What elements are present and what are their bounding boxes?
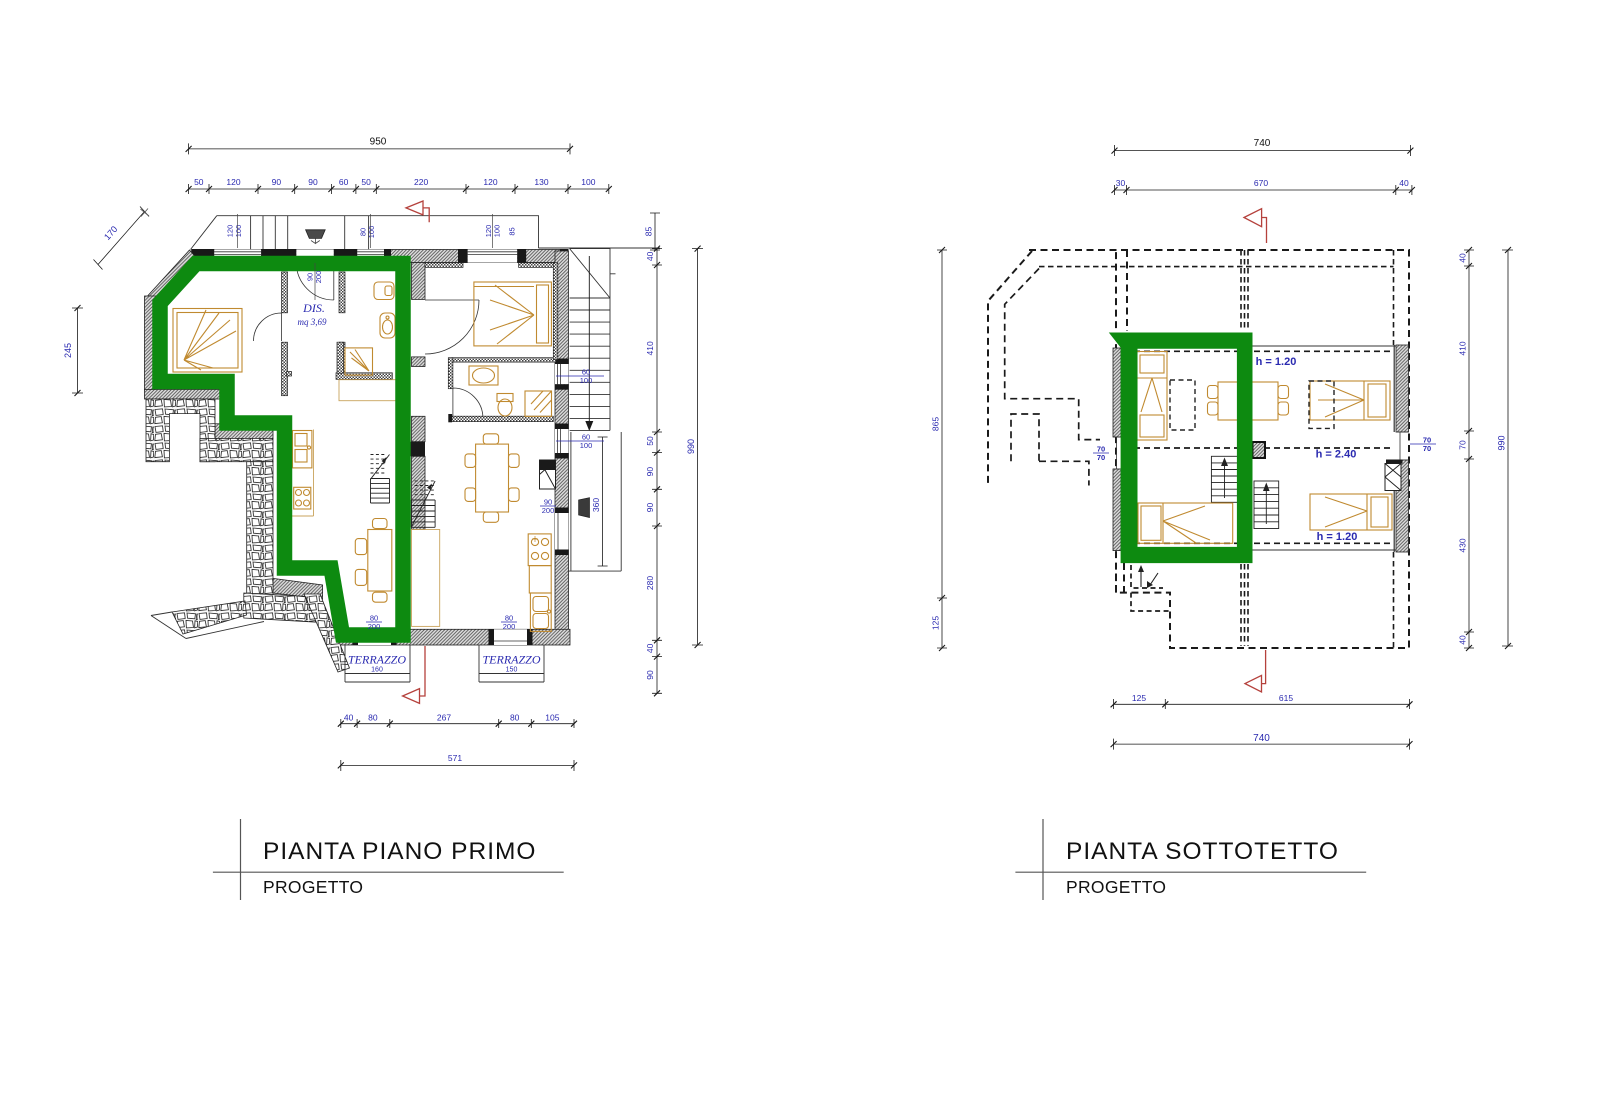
- svg-text:120: 120: [226, 177, 240, 187]
- svg-text:85: 85: [508, 227, 517, 235]
- svg-text:85: 85: [644, 227, 654, 237]
- svg-text:990: 990: [1497, 435, 1507, 450]
- svg-text:40: 40: [1399, 178, 1409, 188]
- svg-text:125: 125: [1132, 693, 1146, 703]
- svg-text:h = 1.20: h = 1.20: [1256, 356, 1297, 368]
- svg-text:220: 220: [414, 177, 428, 187]
- svg-text:70: 70: [1423, 444, 1431, 453]
- svg-text:950: 950: [370, 137, 387, 148]
- svg-text:40: 40: [1458, 253, 1468, 263]
- svg-text:410: 410: [645, 341, 655, 355]
- svg-text:130: 130: [534, 177, 548, 187]
- svg-text:670: 670: [1254, 178, 1268, 188]
- svg-text:TERRAZZO: TERRAZZO: [348, 653, 406, 667]
- svg-text:DIS.: DIS.: [302, 301, 325, 315]
- svg-text:160: 160: [371, 667, 383, 674]
- svg-text:105: 105: [545, 712, 559, 722]
- svg-text:50: 50: [645, 436, 655, 446]
- svg-text:TERRAZZO: TERRAZZO: [482, 653, 540, 667]
- svg-text:100: 100: [492, 225, 501, 238]
- svg-text:267: 267: [437, 712, 451, 722]
- svg-text:PROGETTO: PROGETTO: [263, 877, 363, 897]
- svg-text:200: 200: [503, 622, 516, 631]
- svg-text:200: 200: [368, 622, 381, 631]
- svg-text:571: 571: [448, 753, 462, 763]
- svg-text:120: 120: [483, 177, 497, 187]
- svg-text:990: 990: [686, 439, 696, 454]
- svg-text:70: 70: [1097, 453, 1105, 462]
- svg-text:150: 150: [506, 667, 518, 674]
- svg-text:PROGETTO: PROGETTO: [1066, 877, 1166, 897]
- svg-text:740: 740: [1253, 733, 1270, 744]
- svg-text:40: 40: [645, 251, 655, 261]
- svg-text:40: 40: [1458, 635, 1468, 645]
- svg-text:40: 40: [645, 643, 655, 653]
- svg-text:50: 50: [361, 177, 371, 187]
- svg-text:PIANTA SOTTOTETTO: PIANTA SOTTOTETTO: [1066, 838, 1339, 865]
- svg-text:60: 60: [339, 177, 349, 187]
- svg-text:615: 615: [1279, 693, 1293, 703]
- svg-text:90: 90: [272, 177, 282, 187]
- svg-text:100: 100: [580, 441, 593, 450]
- svg-text:h = 1.20: h = 1.20: [1317, 531, 1358, 543]
- svg-text:50: 50: [194, 177, 204, 187]
- svg-text:100: 100: [367, 226, 376, 239]
- svg-text:80: 80: [510, 712, 520, 722]
- svg-text:90: 90: [645, 670, 655, 680]
- svg-text:mq 3,69: mq 3,69: [298, 317, 327, 327]
- svg-text:430: 430: [1458, 538, 1468, 552]
- svg-text:30: 30: [1116, 178, 1126, 188]
- svg-text:90: 90: [308, 177, 318, 187]
- svg-text:70: 70: [1458, 440, 1468, 450]
- svg-text:125: 125: [931, 616, 941, 630]
- svg-text:80: 80: [368, 712, 378, 722]
- svg-text:40: 40: [344, 712, 354, 722]
- svg-text:200: 200: [542, 506, 555, 515]
- svg-text:360: 360: [591, 498, 601, 512]
- svg-text:280: 280: [645, 576, 655, 590]
- svg-text:245: 245: [63, 343, 73, 358]
- svg-text:90: 90: [645, 503, 655, 513]
- svg-text:100: 100: [234, 225, 243, 238]
- svg-text:100: 100: [581, 177, 595, 187]
- svg-text:90: 90: [645, 467, 655, 477]
- svg-text:100: 100: [580, 376, 593, 385]
- svg-text:410: 410: [1458, 341, 1468, 355]
- svg-text:740: 740: [1254, 138, 1271, 149]
- svg-text:h = 2.40: h = 2.40: [1316, 449, 1357, 461]
- svg-text:865: 865: [931, 417, 941, 431]
- svg-text:PIANTA PIANO PRIMO: PIANTA PIANO PRIMO: [263, 838, 536, 865]
